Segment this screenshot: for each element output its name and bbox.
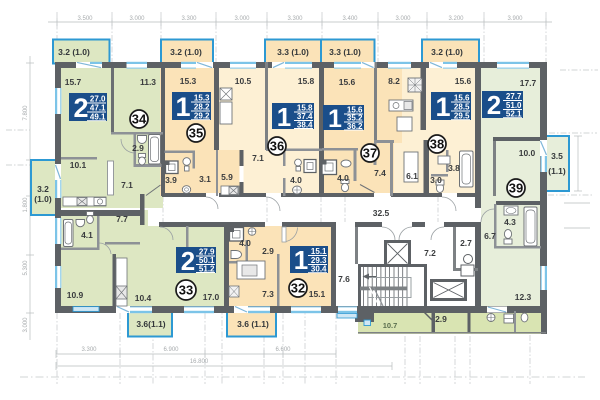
svg-text:5.9: 5.9 bbox=[221, 172, 233, 182]
svg-text:7.6: 7.6 bbox=[338, 274, 350, 284]
svg-text:10.4: 10.4 bbox=[135, 293, 152, 303]
svg-text:1: 1 bbox=[175, 92, 190, 122]
svg-text:49.1: 49.1 bbox=[90, 113, 106, 122]
svg-text:3.6(1.1): 3.6(1.1) bbox=[136, 319, 165, 329]
svg-text:4.3: 4.3 bbox=[504, 217, 516, 227]
svg-text:2: 2 bbox=[487, 90, 501, 120]
svg-text:15.3: 15.3 bbox=[180, 76, 197, 86]
svg-text:15.3: 15.3 bbox=[194, 94, 210, 103]
svg-text:32.5: 32.5 bbox=[373, 208, 390, 218]
svg-text:51.0: 51.0 bbox=[506, 101, 522, 110]
svg-text:3.900: 3.900 bbox=[507, 16, 523, 22]
svg-text:3.3 (1.0): 3.3 (1.0) bbox=[329, 47, 361, 57]
svg-text:2: 2 bbox=[73, 93, 88, 123]
svg-text:39: 39 bbox=[509, 181, 523, 196]
svg-text:3.0: 3.0 bbox=[430, 175, 442, 185]
svg-text:3.300: 3.300 bbox=[287, 16, 303, 22]
svg-text:15.6: 15.6 bbox=[455, 76, 472, 86]
svg-text:10.9: 10.9 bbox=[67, 290, 84, 300]
svg-text:36: 36 bbox=[270, 139, 284, 154]
svg-text:28.2: 28.2 bbox=[194, 103, 210, 112]
svg-text:3.8: 3.8 bbox=[448, 163, 460, 173]
svg-text:7.1: 7.1 bbox=[252, 153, 264, 163]
svg-text:17.7: 17.7 bbox=[520, 78, 537, 88]
svg-text:3.000: 3.000 bbox=[234, 16, 250, 22]
svg-text:28.5: 28.5 bbox=[454, 103, 470, 112]
svg-text:3.1: 3.1 bbox=[199, 174, 211, 184]
svg-text:4.1: 4.1 bbox=[81, 230, 93, 240]
svg-text:3.2 (1.0): 3.2 (1.0) bbox=[431, 47, 463, 57]
svg-text:32: 32 bbox=[291, 281, 305, 296]
svg-text:3.2 (1.0): 3.2 (1.0) bbox=[170, 47, 202, 57]
svg-text:17.0: 17.0 bbox=[203, 292, 220, 302]
svg-text:8.2: 8.2 bbox=[388, 76, 400, 86]
svg-text:1: 1 bbox=[435, 92, 450, 122]
svg-text:3.500: 3.500 bbox=[77, 16, 93, 22]
svg-text:37: 37 bbox=[363, 146, 377, 161]
svg-text:47.1: 47.1 bbox=[90, 104, 106, 113]
svg-text:3.9: 3.9 bbox=[165, 175, 177, 185]
svg-text:3.5: 3.5 bbox=[551, 151, 563, 161]
svg-text:2.9: 2.9 bbox=[435, 314, 447, 324]
svg-text:3.6 (1.1): 3.6 (1.1) bbox=[237, 319, 269, 329]
svg-text:(1.0): (1.0) bbox=[34, 194, 52, 204]
svg-text:38: 38 bbox=[430, 137, 444, 152]
svg-text:3.400: 3.400 bbox=[342, 16, 358, 22]
svg-text:7.7: 7.7 bbox=[116, 214, 128, 224]
svg-text:29.2: 29.2 bbox=[194, 112, 210, 121]
svg-text:33: 33 bbox=[179, 283, 193, 298]
svg-text:15.6: 15.6 bbox=[454, 94, 470, 103]
svg-text:12.3: 12.3 bbox=[515, 292, 532, 302]
svg-text:15.1: 15.1 bbox=[309, 289, 326, 299]
svg-text:6.1: 6.1 bbox=[406, 171, 418, 181]
svg-text:29.3: 29.3 bbox=[311, 256, 327, 265]
svg-text:4.0: 4.0 bbox=[337, 173, 349, 183]
svg-text:15.7: 15.7 bbox=[65, 77, 82, 87]
svg-text:(1.1): (1.1) bbox=[548, 166, 566, 176]
svg-text:1.800: 1.800 bbox=[23, 197, 29, 213]
svg-text:7.2: 7.2 bbox=[424, 248, 436, 258]
svg-text:34: 34 bbox=[132, 112, 147, 127]
svg-text:7.3: 7.3 bbox=[262, 289, 274, 299]
svg-text:1: 1 bbox=[328, 105, 342, 133]
svg-text:15.6: 15.6 bbox=[339, 77, 356, 87]
svg-text:3.000: 3.000 bbox=[395, 16, 411, 22]
svg-text:10.0: 10.0 bbox=[519, 148, 536, 158]
svg-text:15.1: 15.1 bbox=[311, 247, 327, 256]
svg-text:3.200: 3.200 bbox=[448, 16, 464, 22]
svg-text:3.000: 3.000 bbox=[23, 317, 29, 333]
svg-text:7.800: 7.800 bbox=[23, 105, 29, 121]
svg-text:10.1: 10.1 bbox=[70, 160, 87, 170]
svg-text:7.4: 7.4 bbox=[374, 168, 386, 178]
svg-text:2: 2 bbox=[181, 246, 195, 276]
svg-text:4.0: 4.0 bbox=[290, 175, 302, 185]
svg-text:2.9: 2.9 bbox=[132, 143, 144, 153]
svg-text:15.8: 15.8 bbox=[298, 76, 315, 86]
svg-text:3.300: 3.300 bbox=[181, 16, 197, 22]
svg-text:29.5: 29.5 bbox=[454, 112, 470, 121]
svg-text:6.7: 6.7 bbox=[484, 231, 496, 241]
svg-text:16.800: 16.800 bbox=[190, 359, 209, 365]
svg-text:1: 1 bbox=[277, 102, 291, 132]
svg-text:2.7: 2.7 bbox=[460, 238, 472, 248]
svg-text:7.1: 7.1 bbox=[121, 180, 133, 190]
svg-text:2.9: 2.9 bbox=[262, 246, 274, 256]
svg-text:6.900: 6.900 bbox=[163, 347, 179, 353]
svg-text:27.7: 27.7 bbox=[506, 92, 522, 101]
svg-text:3.2: 3.2 bbox=[37, 184, 49, 194]
svg-text:35: 35 bbox=[189, 126, 203, 141]
svg-text:10.7: 10.7 bbox=[383, 321, 398, 330]
svg-text:3.300: 3.300 bbox=[81, 347, 97, 353]
svg-text:3.3 (1.0): 3.3 (1.0) bbox=[277, 47, 309, 57]
svg-text:1: 1 bbox=[294, 245, 308, 275]
svg-text:3.000: 3.000 bbox=[129, 16, 145, 22]
svg-text:3.2 (1.0): 3.2 (1.0) bbox=[58, 47, 90, 57]
svg-text:10.5: 10.5 bbox=[235, 76, 252, 86]
svg-text:27.0: 27.0 bbox=[90, 95, 106, 104]
svg-text:4.0: 4.0 bbox=[239, 238, 251, 248]
svg-text:11.3: 11.3 bbox=[140, 77, 156, 87]
svg-text:5.300: 5.300 bbox=[23, 260, 29, 276]
